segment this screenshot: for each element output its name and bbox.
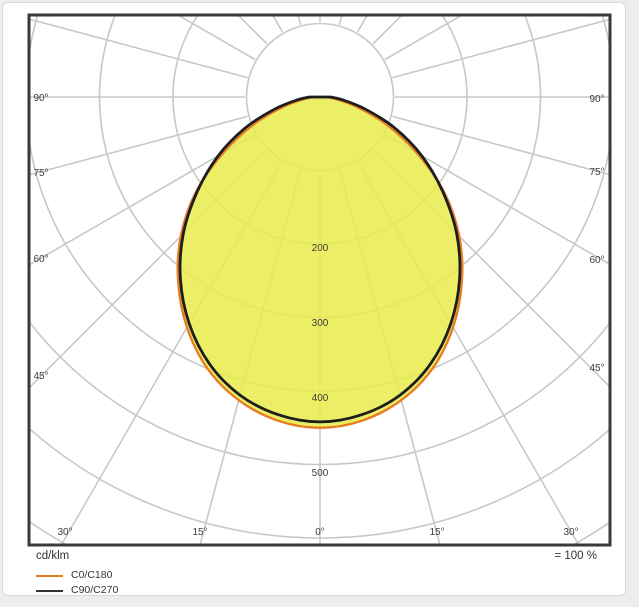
legend-item-c0c180: C0/C180 — [36, 568, 118, 583]
legend-label-c90c270: C90/C270 — [71, 585, 118, 596]
angle-label-90deg: 90° — [589, 95, 604, 105]
angle-label-75deg: 75° — [33, 169, 48, 179]
legend-item-c90c270: C90/C270 — [36, 583, 118, 598]
angle-label-30deg: 30° — [57, 528, 72, 538]
legend-line-c0c180-swatch — [36, 575, 63, 577]
ring-label-200: 200 — [312, 244, 329, 254]
angle-label-60deg: 60° — [33, 255, 48, 265]
unit-label: cd/klm — [36, 551, 69, 563]
angle-label-30deg: 30° — [563, 528, 578, 538]
angle-label-0deg: 0° — [315, 528, 325, 538]
angle-label-75deg: 75° — [589, 168, 604, 178]
polar-photometric-chart: cd/klm = 100 % C0/C180 C90/C270 90°75°60… — [0, 0, 639, 607]
angle-label-90deg: 90° — [33, 94, 48, 104]
angle-label-15deg: 15° — [429, 528, 444, 538]
polar-chart-svg — [0, 0, 639, 607]
angle-label-45deg: 45° — [33, 372, 48, 382]
legend-label-c0c180: C0/C180 — [71, 570, 112, 581]
ring-label-500: 500 — [312, 469, 329, 479]
ring-label-400: 400 — [312, 394, 329, 404]
angle-label-15deg: 15° — [192, 528, 207, 538]
angle-label-60deg: 60° — [589, 256, 604, 266]
legend: C0/C180 C90/C270 — [36, 568, 118, 598]
scale-label: = 100 % — [554, 551, 597, 563]
angle-label-45deg: 45° — [589, 364, 604, 374]
ring-label-300: 300 — [312, 319, 329, 329]
legend-line-c90c270-swatch — [36, 590, 63, 592]
